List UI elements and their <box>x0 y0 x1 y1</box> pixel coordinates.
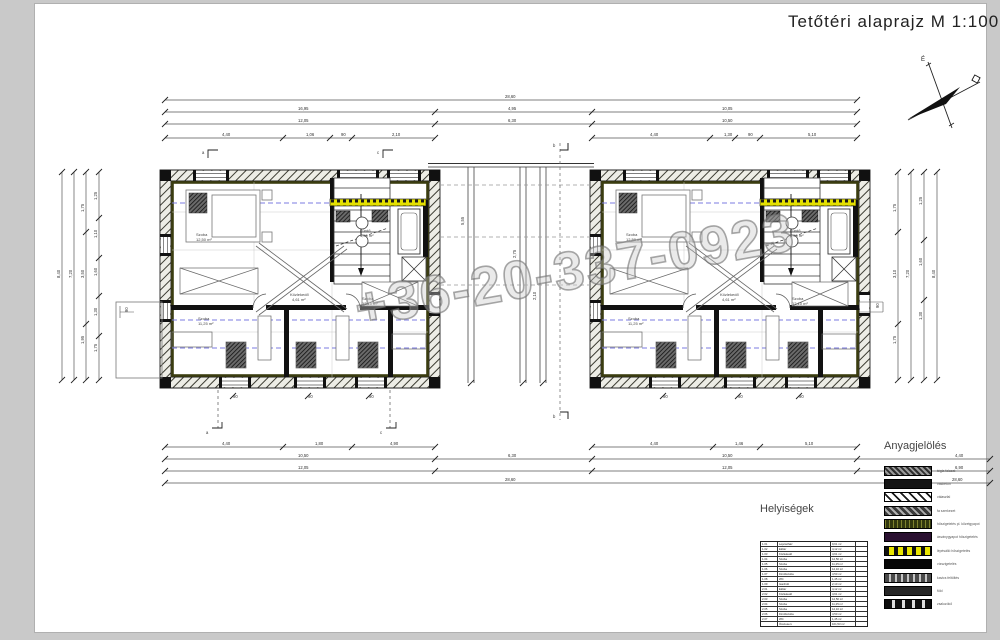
room-schedule-cell: Összesen: <box>778 622 831 626</box>
room-schedule-cell: Előtér <box>778 587 831 591</box>
room-schedule-cell <box>856 612 867 616</box>
legend-title: Anyagjelölés <box>884 440 996 452</box>
dim-label: 4,40 <box>222 441 231 446</box>
dim-label: 7,20 <box>905 269 910 278</box>
legend-item-label: tégla falazat <box>937 469 955 473</box>
room-schedule-cell: WC <box>778 617 831 621</box>
legend-item-label: zsaluzókő <box>937 602 952 606</box>
legend-item: hőszigetelés pl. kőzetgyapot <box>884 520 996 529</box>
dim-label: 4,95 <box>508 106 517 111</box>
room-schedule-cell: Lépcsőház <box>778 542 831 546</box>
dim-label: 1,75 <box>80 203 85 212</box>
room-schedule-cell: Fürdőszoba <box>778 572 831 576</box>
room-schedule-cell <box>856 577 867 581</box>
dim-label: 28,60 <box>505 94 516 99</box>
room-schedule-cell: Fürdőszoba <box>778 612 831 616</box>
room-schedule-cell: 4,12 m² <box>831 587 856 591</box>
dim-label: 90 <box>233 394 238 399</box>
legend-item: lépésálló hőszigetelés <box>884 546 996 555</box>
dim-label: 12,05 <box>722 465 733 470</box>
room-schedule-cell: Szoba <box>778 557 831 561</box>
room-schedule-cell: 4,50 m² <box>831 612 856 616</box>
dim-label: 1,95 <box>80 335 85 344</box>
room-schedule-cell: 101,53 m² <box>831 622 856 626</box>
room-schedule-cell: 11,25 m² <box>831 602 856 606</box>
sw10-swatch <box>884 586 932 596</box>
room-schedule-cell: 1.05 <box>761 562 778 566</box>
legend-item-label: válaszfal <box>937 495 950 499</box>
room-schedule-cell <box>856 572 867 576</box>
room-schedule-cell <box>856 602 867 606</box>
room-schedule-cell <box>856 552 867 556</box>
dim-label: 2,10 <box>392 132 401 137</box>
room-label: 4,61 m² <box>292 297 306 302</box>
dim-label: 1,46 <box>735 441 744 446</box>
room-schedule-cell <box>856 622 867 626</box>
dim-label: 12,05 <box>298 465 309 470</box>
terrace <box>116 302 162 378</box>
room-schedule-cell: 4,61 m² <box>831 552 856 556</box>
dim-label: 5,10 <box>805 441 814 446</box>
room-schedule-cell: 12,10 m² <box>831 607 856 611</box>
room-schedule-cell: 1.04 <box>761 557 778 561</box>
dim-label: 1,06 <box>306 132 315 137</box>
sw8-swatch <box>884 559 932 569</box>
room-schedule-cell <box>856 607 867 611</box>
dim-label: 1,25 <box>918 196 923 205</box>
legend-item: tégla falazat <box>884 466 996 475</box>
legend-item: vízszigetelés <box>884 560 996 569</box>
room-schedule-cell: Szoba <box>778 562 831 566</box>
room-schedule-cell <box>856 562 867 566</box>
dim-label: 28,60 <box>505 477 516 482</box>
legend-item-label: kavics feltöltés <box>937 576 959 580</box>
dim-label: 8,40 <box>931 269 936 278</box>
sw4-swatch <box>884 506 932 516</box>
room-schedule-cell <box>856 582 867 586</box>
room-schedule-cell: Közlekedő <box>778 592 831 596</box>
page: { "page": { "title": "Tetőtéri alaprajz … <box>0 0 1000 640</box>
dim-label: 1,10 <box>93 229 98 238</box>
dim-label: 7,20 <box>68 269 73 278</box>
room-schedule-cell: 11,25 m² <box>831 562 856 566</box>
room-schedule-cell: 2.05 <box>761 607 778 611</box>
dim-label: 6,30 <box>508 453 517 458</box>
legend-item: ásványgyapot hőszigetelés <box>884 533 996 542</box>
legend-item-label: fa szerkezet <box>937 509 955 513</box>
sw11-swatch <box>884 599 932 609</box>
north-arrow: É <box>908 56 980 128</box>
dim-label: 1,30 <box>93 307 98 316</box>
dim-label: 90 <box>369 394 374 399</box>
room-schedule-cell: 12,10 m² <box>831 567 856 571</box>
room-schedule-cell: Szoba <box>778 607 831 611</box>
dim-label: a <box>202 150 205 155</box>
room-schedule-cell <box>856 617 867 621</box>
room-label: 4,50 m² <box>360 233 374 238</box>
sw9-swatch <box>884 573 932 583</box>
room-schedule-cell: WC <box>778 577 831 581</box>
sw5-swatch <box>884 519 932 529</box>
legend-item: kavics feltöltés <box>884 573 996 582</box>
legend-item-label: vasbeton <box>937 482 951 486</box>
room-schedule-cell: 2.07 <box>761 617 778 621</box>
room-schedule-cell: Szoba <box>778 602 831 606</box>
dim-label: 4,40 <box>222 132 231 137</box>
dim-label: 10,50 <box>722 453 733 458</box>
room-schedule-cell <box>856 592 867 596</box>
drawing-title: Tetőtéri alaprajz M 1:100 <box>788 12 999 32</box>
room-schedule-cell: 12,50 m² <box>831 557 856 561</box>
legend-item-label: hőszigetelés pl. kőzetgyapot <box>937 522 980 526</box>
legend-item: vasbeton <box>884 479 996 488</box>
dim-label: 10,50 <box>298 453 309 458</box>
dim-label: 5,10 <box>808 132 817 137</box>
north-label: É <box>921 56 925 63</box>
dim-label: c <box>377 150 379 155</box>
sw7-swatch <box>884 546 932 556</box>
material-legend: Anyagjelölés tégla falazatvasbetonválasz… <box>884 440 996 613</box>
room-schedule-table: 1.01Lépcsőház9,61 m²1.02Előtér4,12 m²1.0… <box>760 541 868 627</box>
legend-item: föld <box>884 587 996 596</box>
room-schedule-cell <box>856 547 867 551</box>
legend-item: fa szerkezet <box>884 506 996 515</box>
room-schedule: Helyiségek 1.01Lépcsőház9,61 m²1.02Előté… <box>760 503 872 627</box>
dim-label: 1,25 <box>93 191 98 200</box>
room-label: 12,50 m² <box>196 237 212 242</box>
dim-label: 6,30 <box>508 118 517 123</box>
room-schedule-cell: 1,45 m² <box>831 577 856 581</box>
dim-label: 10,05 <box>722 106 733 111</box>
dim-label: 5,55 <box>460 216 465 225</box>
dim-label: 4,40 <box>650 441 659 446</box>
dim-label: 90 <box>308 394 313 399</box>
dim-label: 1,75 <box>892 335 897 344</box>
room-schedule-cell <box>761 622 778 626</box>
room-schedule-cell: 2.02 <box>761 592 778 596</box>
legend-item: válaszfal <box>884 493 996 502</box>
room-schedule-cell: 2.01 <box>761 587 778 591</box>
dim-label: 1,80 <box>315 441 324 446</box>
dim-label: 3,50 <box>80 269 85 278</box>
dim-label: 1,60 <box>918 257 923 266</box>
room-schedule-cell: 9,61 m² <box>831 542 856 546</box>
dim-label: 1,60 <box>93 267 98 276</box>
room-schedule-cell: 1.08 <box>761 577 778 581</box>
legend-item: zsaluzókő <box>884 600 996 609</box>
dim-label: 4,90 <box>390 441 399 446</box>
sw1-swatch <box>884 466 932 476</box>
room-schedule-cell: 2,10 m² <box>831 582 856 586</box>
dim-label: 90 <box>799 394 804 399</box>
room-schedule-cell: 1,45 m² <box>831 617 856 621</box>
dim-label: 10,50 <box>722 118 733 123</box>
room-schedule-cell: Közlekedő <box>778 552 831 556</box>
legend-item-label: vízszigetelés <box>937 562 956 566</box>
dim-label: 90 <box>663 394 668 399</box>
dim-label: 1,75 <box>93 343 98 352</box>
room-schedule-cell: 1.01 <box>761 542 778 546</box>
dim-label: 90 <box>748 132 753 137</box>
room-schedule-cell: 4,12 m² <box>831 547 856 551</box>
dim-label: 90 <box>738 394 743 399</box>
sw3-swatch <box>884 492 932 502</box>
room-schedule-cell: 1.06 <box>761 567 778 571</box>
dim-label: 1,30 <box>724 132 733 137</box>
dim-label: 4,40 <box>650 132 659 137</box>
room-schedule-cell: Gardrób <box>778 582 831 586</box>
dim-label: 90 <box>875 303 880 308</box>
room-schedule-cell: 2.03 <box>761 597 778 601</box>
dim-label: c <box>380 430 382 435</box>
dim-label: 1,30 <box>918 311 923 320</box>
room-schedule-cell: 2.04 <box>761 602 778 606</box>
dim-label: b <box>553 414 556 419</box>
dim-label: 90 <box>341 132 346 137</box>
sw2-swatch <box>884 479 932 489</box>
room-schedule-cell: 2.06 <box>761 612 778 616</box>
room-schedule-cell <box>856 587 867 591</box>
dim-label: 3,10 <box>892 269 897 278</box>
dim-label: b <box>553 143 556 148</box>
sw6-swatch <box>884 532 932 542</box>
room-schedule-row: Összesen:101,53 m² <box>761 622 867 626</box>
dim-label: 12,05 <box>298 118 309 123</box>
legend-rows: tégla falazatvasbetonválaszfalfa szerkez… <box>884 466 996 609</box>
room-schedule-cell: Szoba <box>778 567 831 571</box>
room-schedule-cell: 1.09 <box>761 582 778 586</box>
dim-label: 90 <box>124 307 129 312</box>
dim-label: 1,75 <box>892 203 897 212</box>
legend-item-label: föld <box>937 589 942 593</box>
room-schedule-cell: Előtér <box>778 547 831 551</box>
room-schedule-cell: 1.03 <box>761 552 778 556</box>
room-schedule-cell: Szoba <box>778 597 831 601</box>
room-schedule-cell <box>856 567 867 571</box>
legend-item-label: lépésálló hőszigetelés <box>937 549 970 553</box>
room-schedule-cell: 1.02 <box>761 547 778 551</box>
dim-label: 16,95 <box>298 106 309 111</box>
room-label: 11,25 m² <box>198 321 214 326</box>
legend-item-label: ásványgyapot hőszigetelés <box>937 535 978 539</box>
dim-label: 8,40 <box>56 269 61 278</box>
room-schedule-title: Helyiségek <box>760 503 872 515</box>
room-schedule-cell: 4,50 m² <box>831 572 856 576</box>
dim-label: a <box>206 430 209 435</box>
room-schedule-cell: 4,61 m² <box>831 592 856 596</box>
room-schedule-cell: 1.07 <box>761 572 778 576</box>
room-schedule-cell: 12,50 m² <box>831 597 856 601</box>
room-schedule-cell <box>856 597 867 601</box>
room-schedule-cell <box>856 542 867 546</box>
room-schedule-cell <box>856 557 867 561</box>
